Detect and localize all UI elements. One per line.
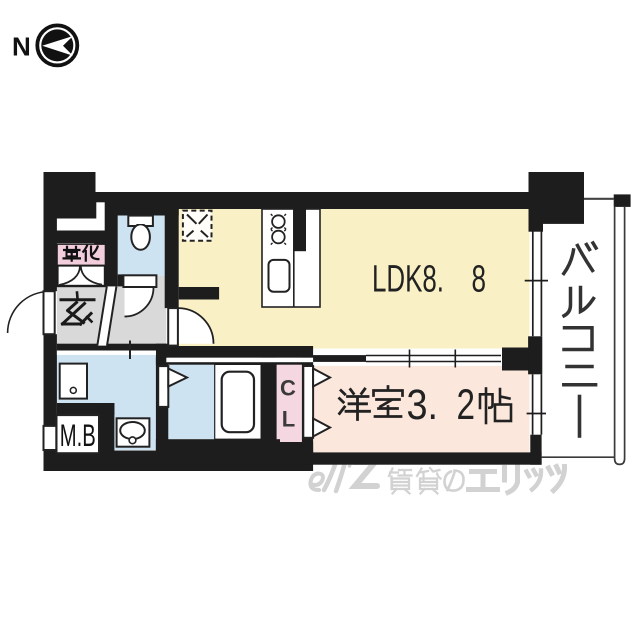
svg-text:3.: 3. bbox=[407, 382, 439, 429]
svg-text:L: L bbox=[282, 407, 295, 432]
svg-text:C: C bbox=[280, 376, 296, 401]
svg-text:N: N bbox=[12, 32, 31, 62]
svg-text:8: 8 bbox=[472, 259, 487, 301]
svg-text:LDK8.: LDK8. bbox=[372, 259, 444, 301]
svg-text:M.B: M.B bbox=[60, 417, 96, 453]
svg-text:2: 2 bbox=[457, 382, 476, 429]
